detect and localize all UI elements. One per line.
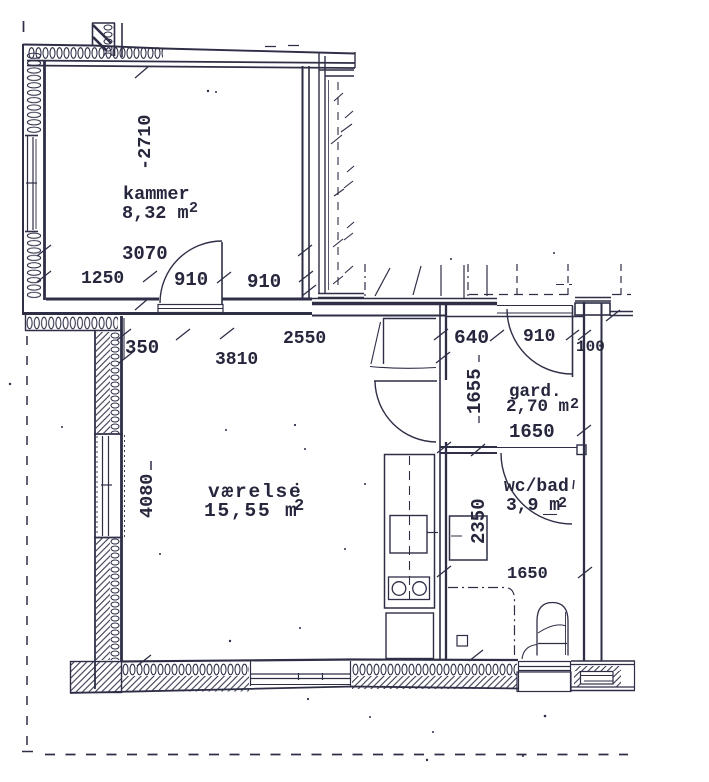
svg-text:3,9 m: 3,9 m bbox=[506, 496, 560, 516]
svg-text:910: 910 bbox=[174, 269, 208, 291]
svg-text:2350: 2350 bbox=[468, 498, 490, 544]
svg-text:640: 640 bbox=[454, 327, 489, 349]
svg-text:2: 2 bbox=[189, 200, 198, 217]
svg-text:1650: 1650 bbox=[509, 421, 555, 443]
svg-text:100: 100 bbox=[576, 338, 605, 356]
svg-text:1650: 1650 bbox=[507, 565, 548, 584]
svg-text:2,70 m: 2,70 m bbox=[506, 397, 569, 417]
svg-text:-2710: -2710 bbox=[135, 114, 156, 170]
svg-text:kammer: kammer bbox=[123, 184, 190, 205]
svg-text:4080: 4080 bbox=[137, 474, 158, 518]
svg-text:2: 2 bbox=[294, 497, 304, 516]
svg-text:3070: 3070 bbox=[122, 243, 168, 265]
svg-text:910: 910 bbox=[523, 327, 555, 347]
svg-text:350: 350 bbox=[125, 337, 159, 359]
svg-text:wc/bad: wc/bad bbox=[504, 477, 569, 497]
svg-text:2550: 2550 bbox=[283, 329, 326, 349]
svg-text:910: 910 bbox=[247, 271, 281, 293]
svg-text:1655: 1655 bbox=[464, 368, 486, 414]
svg-text:8,32 m: 8,32 m bbox=[122, 203, 189, 224]
svg-text:2: 2 bbox=[558, 495, 567, 512]
svg-text:15,55 m: 15,55 m bbox=[204, 500, 299, 522]
svg-text:3810: 3810 bbox=[215, 350, 258, 370]
svg-text:2: 2 bbox=[570, 396, 579, 413]
svg-text:1250: 1250 bbox=[81, 269, 124, 289]
